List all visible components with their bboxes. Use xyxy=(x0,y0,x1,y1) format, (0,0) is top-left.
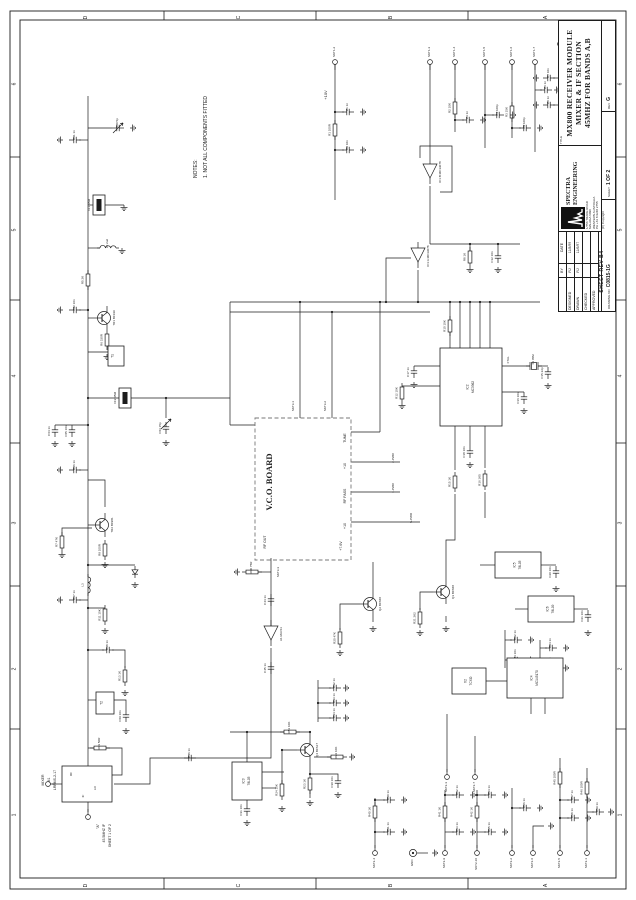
company-name-2: ENGINEERING xyxy=(573,162,580,205)
title-block-main: BY DATE DESIGNEDRJ11/8/99DRAWNRJ11/6/97C… xyxy=(559,21,601,311)
junction-dot xyxy=(309,773,311,775)
junction-dot xyxy=(87,564,89,566)
text-label: R16 1K5 xyxy=(478,474,482,486)
text-label: IC4 xyxy=(530,675,534,680)
title-line-1: MX800 RECEIVER MODULE xyxy=(565,21,574,145)
junction-dot xyxy=(511,807,513,809)
resistor xyxy=(308,778,312,790)
connector-pin xyxy=(510,851,515,856)
text-label: C32 1n xyxy=(332,678,336,688)
text-label: X2 xyxy=(464,679,468,683)
text-label: R8 1K xyxy=(463,253,467,261)
text-label: A1 MAV11 xyxy=(279,627,283,641)
text-label: IC3 xyxy=(242,778,246,783)
text-label: IC1:B MC33078 xyxy=(438,161,442,183)
junction-dot xyxy=(246,731,248,733)
crystal-filter-core xyxy=(97,199,102,211)
text-label: L3 xyxy=(81,583,85,587)
text-label: C20 10n xyxy=(548,566,552,578)
approvals-table: BY DATE DESIGNEDRJ11/8/99DRAWNRJ11/6/97C… xyxy=(559,231,601,311)
text-label: IF xyxy=(81,795,85,798)
text-label: R5 2K xyxy=(81,276,85,284)
resistor xyxy=(123,670,127,682)
text-label: 1 xyxy=(618,813,624,816)
text-label: R10 10K xyxy=(443,320,447,332)
text-label: MIXER xyxy=(41,774,45,786)
resistor xyxy=(400,387,404,399)
text-label: SKT3-1 xyxy=(291,401,295,412)
text-label: T2 xyxy=(100,701,104,705)
junction-dot xyxy=(476,794,478,796)
text-label: TR2 BF981 xyxy=(110,517,114,533)
text-label: C62 10n xyxy=(72,299,76,311)
text-label: C68 1n xyxy=(105,640,109,650)
text-label: SKT2-1 xyxy=(584,858,588,869)
text-label: A xyxy=(543,883,549,887)
junction-dot xyxy=(454,119,456,121)
text-label: R13 1K xyxy=(118,671,122,681)
text-label: +10 xyxy=(343,463,347,469)
text-label: C45 1n xyxy=(263,663,267,673)
connector-pin xyxy=(510,60,515,65)
resistor xyxy=(280,784,284,796)
text-label: C xyxy=(236,15,242,19)
text-label: A xyxy=(543,15,549,19)
text-label: R51 10K xyxy=(287,722,291,734)
text-label: 3 xyxy=(618,521,624,524)
junction-dot xyxy=(497,243,499,245)
text-label: C67 1n xyxy=(72,590,76,600)
junction-dot xyxy=(299,301,301,303)
wire xyxy=(334,774,338,776)
text-label: C8 1n xyxy=(546,96,550,104)
text-label: TUNE xyxy=(343,433,347,443)
text-label: +7.6V xyxy=(339,541,343,551)
text-label: SKT1-6 xyxy=(509,46,513,57)
text-label: C2 10n xyxy=(345,140,349,150)
resistor xyxy=(510,106,514,118)
sheet-cell: SHEET 1 OF 2 xyxy=(602,111,615,199)
text-label: C15 22p xyxy=(540,367,544,379)
diode xyxy=(132,570,138,574)
connector-pin xyxy=(531,851,536,856)
text-label: 45.5MHZ IF xyxy=(102,824,106,842)
crystal-filter-core xyxy=(123,392,128,404)
text-label: C46 1n xyxy=(187,748,191,758)
text-label: 4 xyxy=(12,374,18,377)
wire xyxy=(88,480,105,507)
company-name: SPECTRA ENGINEERING xyxy=(566,162,579,205)
text-label: C22 1n xyxy=(513,630,517,640)
text-label: C17 1n xyxy=(406,367,410,377)
text-label: 2 xyxy=(12,667,18,670)
text-label: R12 10K xyxy=(395,387,399,399)
text-label: C51 1n xyxy=(386,822,390,832)
schematic-canvas: R1 100RR2 10KR3 15KC1 1nC2 10nC3 1nC4 10… xyxy=(0,0,636,900)
text-label: 78L09 xyxy=(551,604,555,613)
text-label: SKT2-7 xyxy=(472,782,476,793)
text-label: C33 1n xyxy=(332,693,336,703)
junction-dot xyxy=(444,794,446,796)
junction-dot xyxy=(87,649,89,651)
text-label: C16 10n xyxy=(516,392,520,404)
resistor xyxy=(418,612,422,624)
text-label: T1 xyxy=(111,354,115,358)
text-label: S-PWR xyxy=(409,512,413,523)
text-label: +10 xyxy=(343,523,347,529)
junction-dot xyxy=(459,301,461,303)
text-label: Q4 BFS17 xyxy=(315,743,319,757)
text-label: LRPMS-2-17 xyxy=(53,770,57,790)
connector-pin xyxy=(475,851,480,856)
junction-dot xyxy=(417,301,419,303)
junction-dot xyxy=(469,301,471,303)
resistor xyxy=(453,102,457,114)
text-label: SKT2-5 xyxy=(557,858,561,869)
wire xyxy=(420,146,452,192)
text-label: MC145170 xyxy=(535,670,539,686)
text-label: R7 47K xyxy=(55,537,59,547)
text-label: R41 1K xyxy=(438,807,442,817)
junction-dot xyxy=(331,311,333,313)
text-label: 78L05 xyxy=(518,560,522,569)
text-label: 6 xyxy=(12,82,18,85)
connector-pin xyxy=(333,60,338,65)
text-label: R46 100R xyxy=(580,780,584,794)
wire xyxy=(282,750,297,784)
text-label: 1-PWR xyxy=(391,482,395,493)
text-label: C7 10n xyxy=(546,68,550,78)
resistor xyxy=(373,806,377,818)
text-label: R21 2K2 xyxy=(413,612,417,624)
title-line-3: 45MHZ FOR BANDS A,B xyxy=(583,21,592,145)
text-label: R1 100R xyxy=(328,123,332,136)
text-label: RF OUT xyxy=(263,535,267,549)
text-label: RF PASS xyxy=(343,488,347,503)
text-label: R3 15K xyxy=(505,107,509,117)
text-label: R40 1K xyxy=(368,807,372,817)
text-label: 5 xyxy=(12,228,18,231)
text-label: R22 10K xyxy=(334,747,338,759)
text-label: C24 1n xyxy=(548,638,552,648)
connector-pin xyxy=(86,815,91,820)
text-label: 4 xyxy=(618,374,624,377)
junction-dot xyxy=(317,702,319,704)
rev-cell: REV G xyxy=(602,21,615,111)
junction-dot xyxy=(309,731,311,733)
text-label: LO xyxy=(93,785,97,790)
opamp xyxy=(264,626,278,640)
text-label: C65 10n xyxy=(64,425,68,437)
resistor xyxy=(86,274,90,286)
resistor xyxy=(468,251,472,263)
text-label: C56 1n xyxy=(522,798,526,808)
text-label: IC1:A MC33078 xyxy=(426,245,430,267)
sheet-label: SHEET xyxy=(607,187,611,197)
junction-dot xyxy=(334,111,336,113)
text-label: C54 1n xyxy=(487,785,491,795)
text-label: SKT2-6 xyxy=(530,858,534,869)
text-label: 6 xyxy=(618,82,624,85)
resistor xyxy=(448,320,452,332)
junction-dot xyxy=(87,424,89,426)
text-label: 2 xyxy=(618,667,624,670)
ic-box xyxy=(62,766,112,802)
text-label: IC2 xyxy=(466,384,470,389)
company-address: 1/756 TRADE ROADMALAGA 6090WESTERN AUSTR… xyxy=(586,148,600,229)
resistor xyxy=(103,609,107,621)
text-label: C34 1n xyxy=(332,708,336,718)
text-label: C50 1n xyxy=(386,790,390,800)
junction-dot xyxy=(449,301,451,303)
approvals-row: DESIGNEDRJ11/8/99 xyxy=(567,232,575,311)
junction-dot xyxy=(559,817,561,819)
junction-dot xyxy=(374,831,376,833)
approvals-date-label: DATE xyxy=(559,232,566,263)
wire xyxy=(533,826,544,848)
text-label: B xyxy=(388,15,394,19)
wire xyxy=(62,528,92,536)
text-label: C58 1n xyxy=(570,808,574,818)
schematic-page: R1 100RR2 10KR3 15KC1 1nC2 10nC3 1nC4 10… xyxy=(0,0,636,900)
text-label: C52 1n xyxy=(455,785,459,795)
text-label: SKT1-2 xyxy=(332,46,336,57)
junction-dot xyxy=(334,149,336,151)
title-block-strip: DRAWING NO C0815-1G SHEET 1 OF 2 REV G xyxy=(601,21,615,311)
text-label: D xyxy=(83,15,89,19)
text-label: C6 1n xyxy=(543,81,547,89)
connector-pin xyxy=(445,775,450,780)
company-block: SPECTRA ENGINEERING 1/756 TRADE ROADMALA… xyxy=(559,145,601,231)
connector-pin xyxy=(483,60,488,65)
text-label: R6 330R xyxy=(100,333,104,346)
text-label: C55 1n xyxy=(487,822,491,832)
text-label: IC5 xyxy=(513,562,517,567)
text-label: R23 1K xyxy=(303,779,307,789)
junction-dot xyxy=(511,127,513,129)
text-label: R2 10K xyxy=(448,103,452,113)
text-label: NOTES: xyxy=(193,159,199,178)
drawing-no-label: DRAWING NO xyxy=(607,289,611,309)
connector-pin xyxy=(443,851,448,856)
resistor xyxy=(585,782,589,794)
rev-label: REV xyxy=(607,103,611,109)
resistor xyxy=(333,124,337,136)
connector-pin xyxy=(558,851,563,856)
text-label: R45 100R xyxy=(553,770,557,784)
text-label: "A" xyxy=(96,823,100,829)
text-label: 5 xyxy=(618,228,624,231)
connector-pin xyxy=(453,60,458,65)
resistor xyxy=(475,806,479,818)
text-label: C18 10n xyxy=(462,446,466,458)
text-label: X1 45M xyxy=(531,354,535,365)
title-line-2: MIXER & IF SECTION xyxy=(574,21,583,145)
approvals-rows: DESIGNEDRJ11/8/99DRAWNRJ11/6/97CHECKEDAP… xyxy=(567,232,599,311)
resistor xyxy=(443,806,447,818)
resistor xyxy=(558,772,562,784)
resistor xyxy=(338,632,342,644)
connector-pin xyxy=(533,60,538,65)
text-label: R24 15K xyxy=(275,784,279,796)
approvals-header: BY DATE xyxy=(559,232,567,311)
text-label: C44 1n xyxy=(263,595,267,605)
junction-dot xyxy=(374,799,376,801)
text-label: Q3 BC848 xyxy=(451,585,455,599)
connector-pin xyxy=(585,851,590,856)
wire xyxy=(340,604,360,630)
resistor xyxy=(105,334,109,346)
junction-dot xyxy=(281,749,283,751)
text-label: Q2 BC848 xyxy=(378,597,382,611)
text-label: R9 100R xyxy=(98,543,102,556)
rev-value: G xyxy=(606,97,612,101)
resistor xyxy=(453,476,457,488)
title-label: TITLE xyxy=(559,136,563,144)
junction-dot xyxy=(87,607,89,609)
connector-pin xyxy=(473,775,478,780)
text-label: C12 10n xyxy=(490,251,494,263)
wire xyxy=(114,700,126,710)
text-label: SKT1-5 xyxy=(482,46,486,57)
title-area: TITLE MX800 RECEIVER MODULE MIXER & IF S… xyxy=(559,21,601,145)
connector-pin xyxy=(46,782,51,787)
opamp xyxy=(423,164,437,178)
text-label: D xyxy=(83,883,89,887)
text-label: IC6 xyxy=(546,606,550,611)
text-label: TR1 BF199 xyxy=(112,310,116,326)
text-label: SHEET 1 OF 2 xyxy=(108,824,112,847)
junction-dot xyxy=(87,309,89,311)
text-label: C21 10n xyxy=(580,610,584,622)
text-label: SKT2-2 xyxy=(509,858,513,869)
text-label: C5 100p xyxy=(522,117,526,129)
wire xyxy=(386,258,411,302)
junction-dot xyxy=(559,799,561,801)
connector-pin xyxy=(428,60,433,65)
text-label: MC3362 xyxy=(471,381,475,393)
text-label: R20 47K xyxy=(333,632,337,644)
text-label: C63 15p xyxy=(158,422,162,434)
wire xyxy=(446,494,455,580)
inductor xyxy=(88,577,91,593)
junction-dot xyxy=(87,397,89,399)
text-label: SKT3-2 xyxy=(323,401,327,412)
approvals-header-blank xyxy=(559,277,566,311)
text-label: SKT2-4 xyxy=(372,858,376,869)
text-label: R15 1K xyxy=(448,477,452,487)
text-label: C64 1n xyxy=(47,426,51,436)
wire xyxy=(112,650,125,668)
drawing-no-value: C0815-1G xyxy=(606,264,612,287)
sheet-value: 1 OF 2 xyxy=(606,170,612,185)
junction-dot xyxy=(484,114,486,116)
text-label: XTAL xyxy=(506,356,510,364)
wire xyxy=(420,592,433,610)
approvals-row: DRAWNRJ11/6/97 xyxy=(575,232,583,311)
text-label: RF xyxy=(69,772,73,776)
text-label: SKT2-9 xyxy=(442,858,446,869)
junction-dot xyxy=(379,301,381,303)
text-label: V.C.O. BOARD xyxy=(264,454,274,511)
approvals-row: CHECKED xyxy=(583,232,591,311)
junction-dot xyxy=(479,301,481,303)
approvals-by-label: BY xyxy=(559,263,566,277)
opamp xyxy=(411,248,425,262)
junction-dot xyxy=(469,243,471,245)
text-label: R11 10K xyxy=(98,609,102,620)
text-label: 1. NOT ALL COMPONENTS FITTED xyxy=(203,96,209,178)
text-label: C69 10n xyxy=(118,710,122,722)
connector-pin xyxy=(373,851,378,856)
text-label: C30 10n xyxy=(330,776,334,788)
text-label: SKT3-3 xyxy=(276,567,280,578)
spectra-logo-icon xyxy=(561,207,585,229)
text-label: 2-PWR xyxy=(391,452,395,463)
text-label: SKT2-10 xyxy=(474,858,478,870)
text-label: 78L05 xyxy=(247,776,251,785)
text-label: C61 1n xyxy=(72,130,76,140)
text-label: C53 1n xyxy=(455,822,459,832)
text-label: C31 10n xyxy=(239,804,243,816)
text-label: C57 1n xyxy=(570,790,574,800)
text-label: GND xyxy=(410,859,414,867)
title-block: BY DATE DESIGNEDRJ11/8/99DRAWNRJ11/6/97C… xyxy=(558,20,616,312)
resistor xyxy=(60,536,64,548)
text-label: TCXO xyxy=(469,676,473,685)
resistor xyxy=(483,474,487,486)
company-top: SPECTRA ENGINEERING xyxy=(561,148,585,229)
text-label: SKT2-3 xyxy=(444,782,448,793)
text-label: SKT1-3 xyxy=(427,46,431,57)
text-label: C1 1n xyxy=(345,103,349,111)
resistor xyxy=(103,544,107,556)
text-label: C60 5p xyxy=(115,118,119,128)
text-label: L2 2u2 xyxy=(105,239,109,249)
text-label: R30 75R xyxy=(249,561,253,574)
approvals-row: APPROVED xyxy=(591,232,599,311)
text-label: C xyxy=(236,883,242,887)
text-label: B xyxy=(388,883,394,887)
junction-dot xyxy=(165,397,167,399)
text-label: SKT1-4 xyxy=(452,46,456,57)
text-label: +10V xyxy=(323,90,328,100)
drawing-no-cell: DRAWING NO C0815-1G xyxy=(602,199,615,311)
junction-dot xyxy=(385,301,387,303)
text-label: SKT1-7 xyxy=(532,46,536,57)
text-label: XF2 45M xyxy=(113,391,117,404)
junction-dot xyxy=(489,301,491,303)
drawing-title: MX800 RECEIVER MODULE MIXER & IF SECTION… xyxy=(565,21,592,145)
text-label: 3 xyxy=(12,521,18,524)
gnd-connector-dot xyxy=(412,852,414,854)
text-label: C3 1n xyxy=(465,111,469,119)
text-label: R42 1K xyxy=(470,807,474,817)
text-label: 1 xyxy=(12,813,18,816)
text-label: C4 100p xyxy=(495,104,499,116)
text-label: C59 1n xyxy=(595,802,599,812)
text-label: XF1 45M xyxy=(87,198,91,211)
text-label: R33 50R xyxy=(97,737,101,750)
text-label: C66 1n xyxy=(72,460,76,470)
